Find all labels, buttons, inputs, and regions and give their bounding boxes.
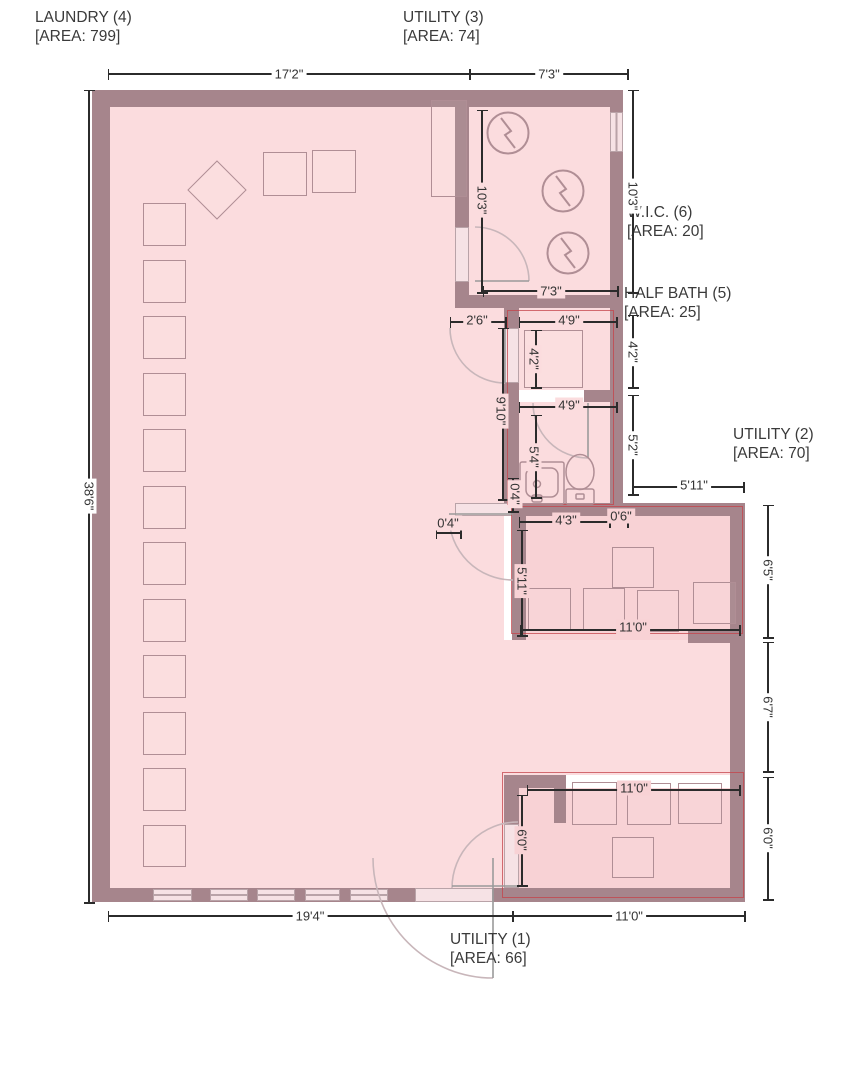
fixture-square: [263, 152, 307, 196]
dimension-label: 38'6": [82, 479, 97, 514]
fixture-square: [143, 825, 186, 867]
window: [350, 889, 388, 901]
room-label: HALF BATH (5) [AREA: 25]: [624, 284, 731, 322]
dimension-label: 4'9": [555, 313, 583, 328]
fixture-square: [143, 429, 186, 472]
dimension-label: 7'3": [535, 67, 563, 82]
wall-north: [92, 90, 623, 107]
room-floor-utility3: [469, 107, 610, 295]
dimension-label: 9'10": [494, 394, 509, 429]
dimension-label: 5'11": [515, 564, 530, 598]
dimension-label: 6'7": [761, 693, 776, 721]
fixture-square: [143, 260, 186, 303]
dimension-label: 5'4": [527, 443, 542, 471]
dimension-label: 5'2": [626, 431, 641, 459]
dimension-label: 11'0": [617, 781, 651, 796]
window: [153, 889, 192, 901]
dimension-label: 11'0": [616, 620, 650, 635]
dimension-label: 6'0": [761, 824, 776, 852]
dimension-label: 2'6": [463, 313, 491, 328]
fixture-square: [612, 837, 654, 878]
window: [610, 112, 623, 152]
dimension-label: 4'9": [555, 398, 583, 413]
window: [305, 889, 340, 901]
fixture-square: [528, 588, 571, 630]
dimension-label: 0'6": [607, 509, 635, 524]
fixture-square: [143, 373, 186, 416]
dimension-label: 4'2": [527, 345, 542, 373]
door-opening-utility3: [455, 227, 469, 282]
dimension-label: 19'4": [293, 909, 328, 924]
fixture-square: [143, 316, 186, 359]
fixture-square: [143, 203, 186, 246]
window: [257, 889, 295, 901]
dimension-label: 4'3": [552, 513, 580, 528]
fixture-square: [143, 486, 186, 529]
dimension-label: 6'5": [761, 556, 776, 584]
room-label: UTILITY (2) [AREA: 70]: [733, 425, 814, 463]
room-label: LAUNDRY (4) [AREA: 799]: [35, 8, 132, 46]
fixture-square: [143, 768, 186, 811]
fixture-square: [143, 542, 186, 585]
fixture-square: [143, 599, 186, 642]
room-label: UTILITY (3) [AREA: 74]: [403, 8, 484, 46]
fixture-square: [143, 655, 186, 698]
fixture-square: [693, 582, 736, 624]
dimension-label: 17'2": [272, 67, 307, 82]
fixture-square: [312, 150, 356, 193]
dimension-label: 10'3": [475, 183, 490, 218]
room-label: UTILITY (1) [AREA: 66]: [450, 930, 531, 968]
dimension-label: 4'2": [626, 338, 641, 366]
dimension-label: 6'0": [515, 826, 530, 854]
fixture-square: [612, 547, 654, 588]
dimension-label: 10'3": [626, 179, 641, 214]
fixture-counter: [431, 100, 467, 197]
dimension-label: 0'4": [434, 516, 462, 531]
door-opening-exterior: [415, 888, 493, 902]
dimension-label: 5'11": [677, 478, 711, 493]
door-opening-utility2: [455, 503, 512, 516]
fixture-square: [143, 712, 186, 755]
dimension-label: 7'3": [537, 284, 565, 299]
dimension-label: 11'0": [612, 909, 646, 924]
window: [210, 889, 248, 901]
room-floor-laundry-corridor: [455, 640, 730, 775]
dimension-line: [436, 532, 461, 534]
dimension-label: 0'4": [508, 480, 523, 508]
floor-plan: LAUNDRY (4) [AREA: 799]UTILITY (3) [AREA…: [0, 0, 861, 1080]
